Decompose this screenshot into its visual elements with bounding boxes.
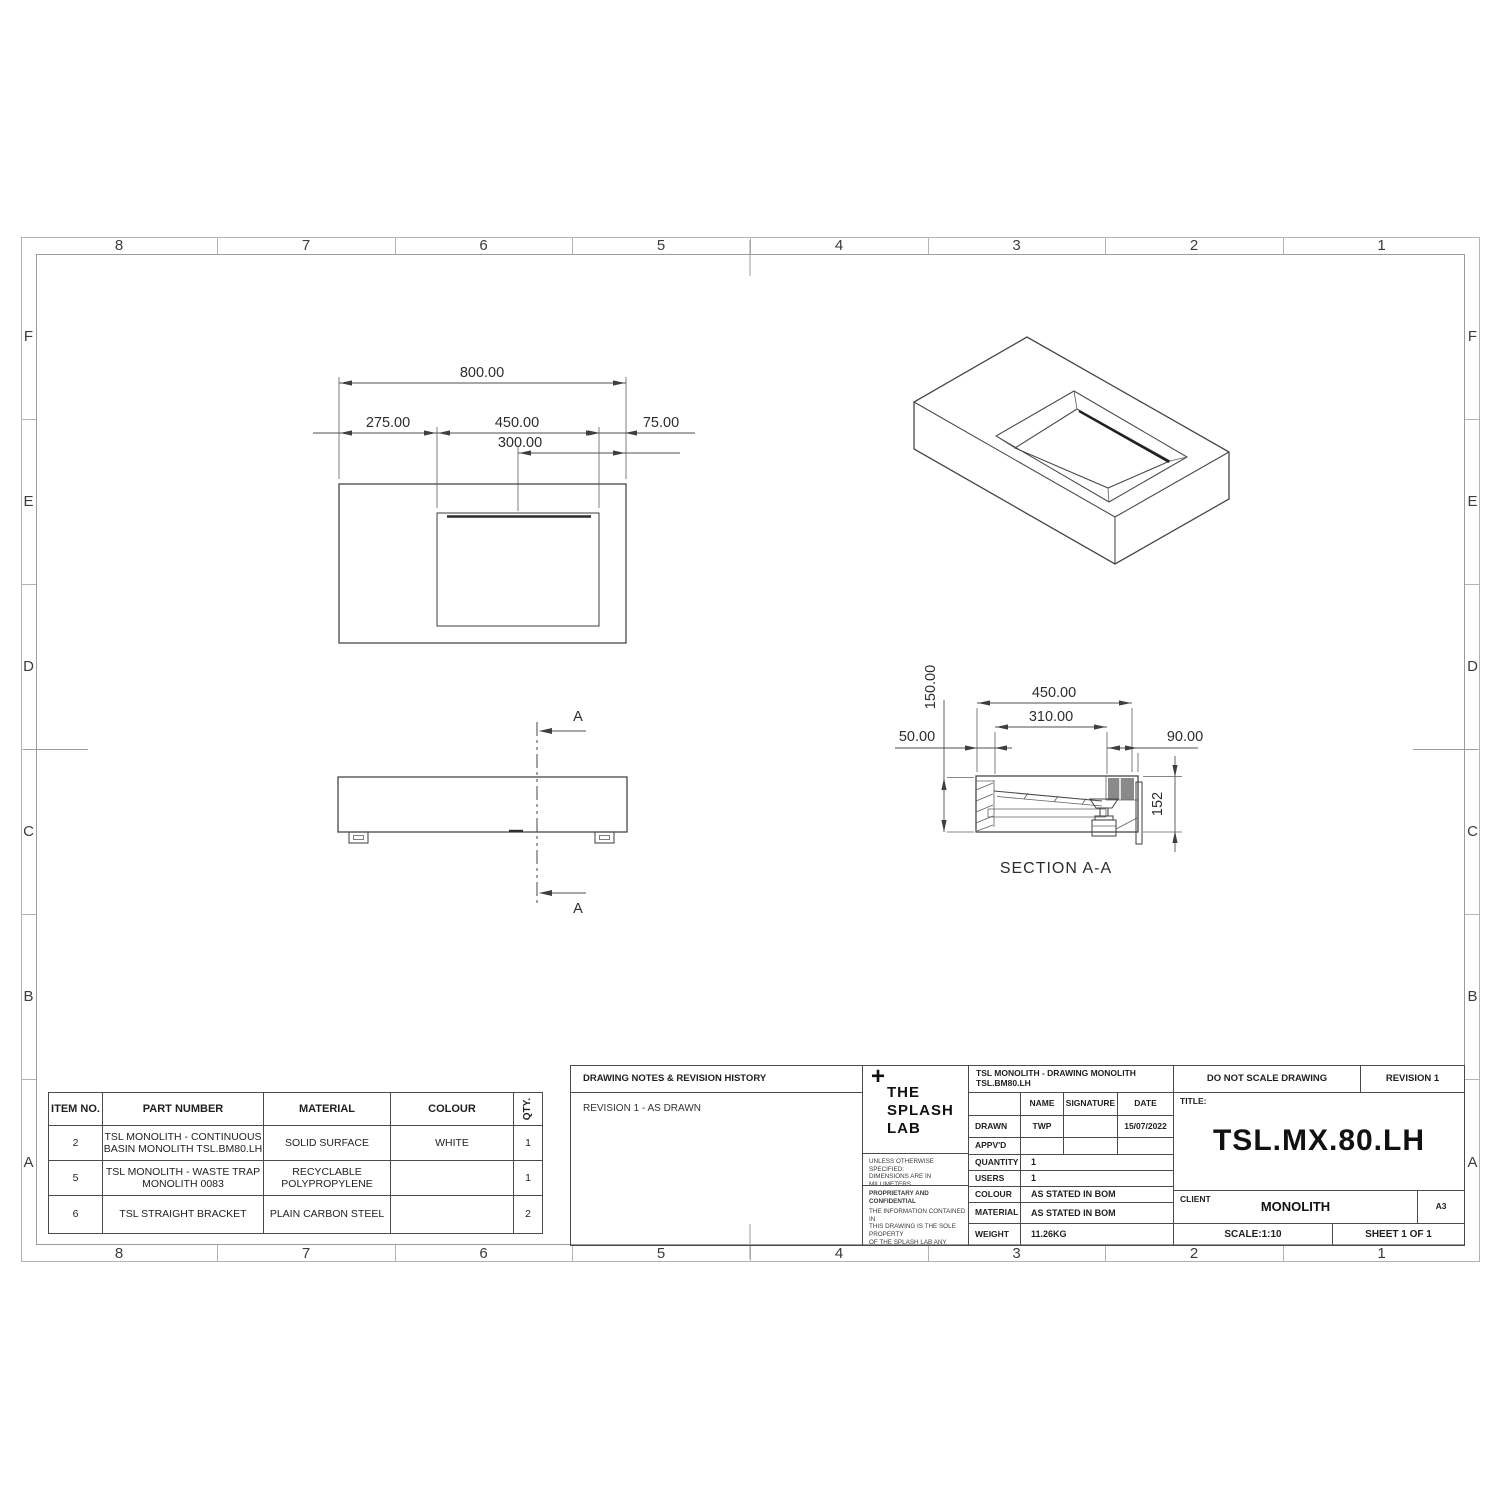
field-value-material: AS STATED IN BOM xyxy=(1020,1202,1174,1224)
notes-header: DRAWING NOTES & REVISION HISTORY xyxy=(570,1065,863,1093)
proprietary-line: OF THE SPLASH LAB ANY xyxy=(869,1239,966,1246)
sig-header-signature: SIGNATURE xyxy=(1063,1092,1118,1116)
bom-row-qty: 2 xyxy=(513,1195,543,1234)
spec-line: UNLESS OTHERWISE SPECIFIED: xyxy=(869,1158,966,1173)
bom-row-qty: 1 xyxy=(513,1125,543,1161)
field-label-users: USERS xyxy=(968,1170,1021,1187)
logo-line-lab: LAB xyxy=(887,1120,921,1138)
title-cell: TITLE: TSL.MX.80.LH xyxy=(1173,1092,1465,1191)
bom-row-item: 6 xyxy=(48,1195,103,1234)
dim-section-inner-width: 310.00 xyxy=(1029,709,1073,725)
proprietary-line: THE INFORMATION CONTAINED IN xyxy=(869,1208,966,1223)
bracket-plate xyxy=(1136,782,1142,844)
section-view-title: SECTION A-A xyxy=(1000,860,1112,877)
bom-row-material: PLAIN CARBON STEEL xyxy=(263,1195,391,1234)
title-label: TITLE: xyxy=(1180,1097,1206,1107)
do-not-scale-note: DO NOT SCALE DRAWING xyxy=(1173,1065,1361,1093)
field-value-colour: AS STATED IN BOM xyxy=(1020,1186,1174,1203)
bom-row-part: TSL STRAIGHT BRACKET xyxy=(102,1195,264,1234)
client-name: MONOLITH xyxy=(1261,1200,1330,1215)
field-label-weight: WEIGHT xyxy=(968,1223,1021,1246)
field-label-material: MATERIAL xyxy=(968,1202,1021,1224)
bom-row-part: TSL MONOLITH - CONTINUOUS BASIN MONOLITH… xyxy=(102,1125,264,1161)
sheet-cell: SHEET 1 OF 1 xyxy=(1332,1223,1465,1246)
doc-title: TSL MONOLITH - DRAWING MONOLITH TSL.BM80… xyxy=(968,1065,1174,1093)
sig-row-signature xyxy=(1063,1115,1118,1138)
dim-section-right-wall: 90.00 xyxy=(1167,729,1203,745)
splash-lab-logo: + THE SPLASH LAB xyxy=(862,1065,969,1154)
sig-row-signature xyxy=(1063,1137,1118,1155)
sig-row-name: TWP xyxy=(1020,1115,1064,1138)
section-arrow-label-top: A xyxy=(573,709,583,725)
bom-row-material: RECYCLABLE POLYPROPYLENE xyxy=(263,1160,391,1196)
bom-row-colour: WHITE xyxy=(390,1125,514,1161)
sig-row-label: APPV'D xyxy=(968,1137,1021,1155)
proprietary-line: THIS DRAWING IS THE SOLE PROPERTY xyxy=(869,1223,966,1238)
logo-line-the: THE xyxy=(887,1084,920,1102)
dim-section-left-wall: 50.00 xyxy=(899,729,935,745)
spec-notes: UNLESS OTHERWISE SPECIFIED: DIMENSIONS A… xyxy=(862,1153,969,1186)
dim-plan-drain-offset: 300.00 xyxy=(498,435,542,451)
dim-plan-right-offset: 75.00 xyxy=(643,415,679,431)
proprietary-header: PROPRIETARY AND CONFIDENTIAL xyxy=(869,1190,966,1205)
waste-trap xyxy=(1090,799,1137,836)
section-view: 450.00 310.00 50.00 90.00 150.00 xyxy=(895,665,1203,877)
bom-row-item: 2 xyxy=(48,1125,103,1161)
client-label: CLIENT xyxy=(1180,1195,1211,1205)
dim-plan-basin-width: 450.00 xyxy=(495,415,539,431)
client-cell: CLIENT MONOLITH xyxy=(1173,1190,1418,1224)
section-right-wall-fill xyxy=(1108,778,1134,800)
bom-row-qty: 1 xyxy=(513,1160,543,1196)
notes-body: REVISION 1 - AS DRAWN xyxy=(570,1092,863,1246)
dim-section-depth: 150.00 xyxy=(923,665,939,709)
proprietary-notice: PROPRIETARY AND CONFIDENTIAL THE INFORMA… xyxy=(862,1185,969,1246)
revision-cell: REVISION 1 xyxy=(1360,1065,1465,1093)
dim-plan-overall: 800.00 xyxy=(460,365,504,381)
drawing-sheet: 8877665544332211FFEEDDCCBBAA xyxy=(0,0,1500,1500)
scale-cell: SCALE:1:10 xyxy=(1173,1223,1333,1246)
sig-header-date: DATE xyxy=(1117,1092,1174,1116)
sig-row-date: 15/07/2022 xyxy=(1117,1115,1174,1138)
bom-header-part: PART NUMBER xyxy=(102,1092,264,1126)
front-view: A A xyxy=(338,709,627,917)
bom-header-material: MATERIAL xyxy=(263,1092,391,1126)
paper-size-cell: A3 xyxy=(1417,1190,1465,1224)
bom-row-item: 5 xyxy=(48,1160,103,1196)
field-label-colour: COLOUR xyxy=(968,1186,1021,1203)
bom-row-colour xyxy=(390,1160,514,1196)
field-value-quantity: 1 xyxy=(1020,1154,1174,1171)
logo-line-splash: SPLASH xyxy=(887,1102,954,1120)
dim-section-outer-width: 450.00 xyxy=(1032,685,1076,701)
sig-row-label: DRAWN xyxy=(968,1115,1021,1138)
revision-note: REVISION 1 - AS DRAWN xyxy=(583,1103,701,1115)
dim-section-height: 152 xyxy=(1150,792,1166,816)
sig-row-date xyxy=(1117,1137,1174,1155)
bom-header-item: ITEM NO. xyxy=(48,1092,103,1126)
bom-header-qty: QTY. xyxy=(513,1092,543,1126)
isometric-view xyxy=(914,337,1229,564)
field-value-users: 1 xyxy=(1020,1170,1174,1187)
field-label-quantity: QUANTITY xyxy=(968,1154,1021,1171)
bom-row-colour xyxy=(390,1195,514,1234)
bom-row-material: SOLID SURFACE xyxy=(263,1125,391,1161)
bom-header-qty-label: QTY. xyxy=(522,1098,534,1120)
dim-plan-left-offset: 275.00 xyxy=(366,415,410,431)
sig-row-name xyxy=(1020,1137,1064,1155)
bom-row-part: TSL MONOLITH - WASTE TRAP MONOLITH 0083 xyxy=(102,1160,264,1196)
sig-header-name: NAME xyxy=(1020,1092,1064,1116)
sig-blank-header xyxy=(968,1092,1021,1116)
section-arrow-label-bottom: A xyxy=(573,901,583,917)
bom-header-colour: COLOUR xyxy=(390,1092,514,1126)
logo-plus-icon: + xyxy=(871,1068,886,1086)
drawing-title: TSL.MX.80.LH xyxy=(1213,1124,1425,1159)
plan-view: 800.00 275.00 450.00 75.00 300.00 xyxy=(313,365,695,643)
field-value-weight: 11.26KG xyxy=(1020,1223,1174,1246)
drawing-views: 800.00 275.00 450.00 75.00 300.00 A A xyxy=(0,0,1500,1500)
